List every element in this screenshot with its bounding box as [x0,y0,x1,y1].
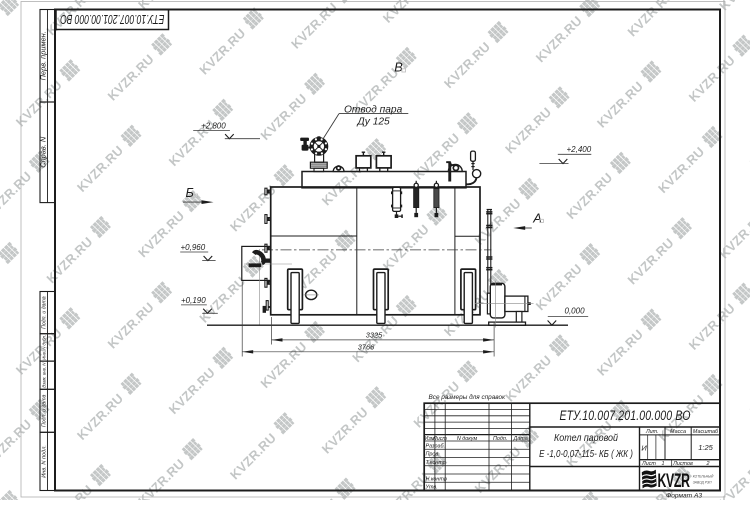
svg-text:Н.контр: Н.контр [426,476,447,482]
svg-text:Инв. N подл.: Инв. N подл. [41,445,47,478]
svg-text:Все размеры для справок: Все размеры для справок [429,393,507,401]
svg-text:Взам. инв. N: Взам. инв. N [41,362,46,388]
svg-text:KVZR: KVZR [658,470,691,492]
svg-text:N докум: N докум [457,436,478,442]
svg-text:И: И [641,444,647,453]
svg-text:1: 1 [662,461,665,467]
svg-text:3766: 3766 [358,343,375,352]
svg-text:2: 2 [706,461,710,467]
svg-text:+2,400: +2,400 [567,145,592,154]
svg-text:+0,960: +0,960 [181,243,206,252]
svg-text:Подп. и дата: Подп. и дата [41,296,47,329]
svg-text:Разраб.: Разраб. [426,444,446,450]
svg-text:Дата: Дата [512,436,527,442]
svg-text:Подп.: Подп. [493,436,507,442]
svg-text:Ду 125: Ду 125 [357,117,391,128]
svg-text:Масштаб: Масштаб [693,429,719,435]
svg-text:КОТЕЛЬНЫЙ: КОТЕЛЬНЫЙ [693,474,714,478]
svg-text:Инв. N дубл.: Инв. N дубл. [41,335,46,360]
svg-text:ЕТУ.10.007.201.00.000 ВО: ЕТУ.10.007.201.00.000 ВО [60,12,165,26]
svg-text:Б: Б [186,185,194,200]
svg-text:ЕТУ.10.007.201.00.000 ВО: ЕТУ.10.007.201.00.000 ВО [559,407,690,423]
svg-text:3325: 3325 [366,331,383,340]
svg-text:Е -1,0-0,07-115- КБ ( ЖК ): Е -1,0-0,07-115- КБ ( ЖК ) [539,448,633,459]
svg-text:Формат А3: Формат А3 [666,493,702,500]
svg-text:Лист: Лист [641,461,656,467]
svg-text:Утв.: Утв. [425,485,438,491]
svg-text:А: А [532,210,542,225]
svg-text:Пров.: Пров. [426,452,440,458]
svg-text:Т.контр: Т.контр [426,460,446,466]
svg-text:Перв. примен.: Перв. примен. [38,31,47,80]
svg-text:Масса: Масса [670,429,686,435]
svg-text:Подп. и дата: Подп. и дата [41,394,47,427]
svg-text:ЗАВОД РЭП: ЗАВОД РЭП [693,480,712,484]
svg-text:Лист: Лист [432,436,447,442]
svg-text:+0,190: +0,190 [181,296,206,305]
svg-text:Листов: Листов [672,461,693,467]
svg-text:Лит.: Лит. [645,429,659,435]
svg-text:Котел паровой: Котел паровой [554,432,619,444]
svg-text:0,000: 0,000 [565,307,586,316]
svg-text:1:25: 1:25 [698,443,713,452]
svg-text:Справ. N: Справ. N [38,136,47,168]
svg-text:+2,800: +2,800 [201,122,226,131]
